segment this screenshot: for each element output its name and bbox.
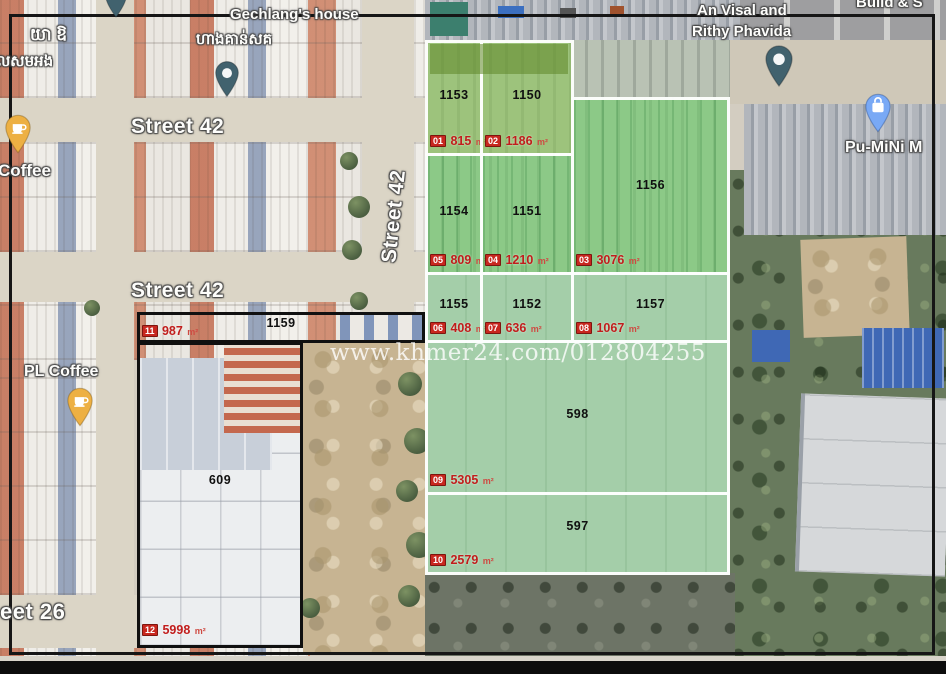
place-label-gechlang: Gechlang's house [230, 6, 359, 23]
watermark: www.khmer24.com/012804255 [330, 340, 706, 366]
place-label-pl-coffee: PL Coffee [24, 363, 98, 381]
place-label-khmer-2: លសមអង [0, 52, 53, 74]
bottom-black-bar [0, 661, 946, 674]
street-label-42-mid: Street 42 [131, 279, 224, 303]
place-label-pu-mini: Pu-MiNi M [845, 139, 922, 157]
shopping-pin-icon [864, 91, 892, 135]
coffee-pin-icon [4, 112, 32, 156]
place-pin-icon [104, 0, 128, 18]
place-label-an-visal-2: Rithy Phavida [692, 23, 791, 40]
image-border-frame [9, 14, 935, 655]
street-label-26: eet 26 [0, 599, 65, 625]
street-label-42-top: Street 42 [131, 115, 224, 139]
place-pin-icon [214, 60, 240, 98]
place-pin-icon [764, 44, 794, 88]
coffee-pin-icon [66, 386, 94, 428]
place-label-an-visal-1: An Visal and [697, 2, 787, 19]
place-label-build: Build & S [856, 0, 923, 11]
place-label-coffee: Coffee [0, 161, 51, 181]
place-label-khmer-1: យា ឱ [30, 24, 67, 49]
satellite-map-image: 1153 01 815 m² 1150 02 1186 m² 1156 03 3… [0, 0, 946, 674]
place-label-gechlang-khmer: ហាងគាន់សគ [196, 30, 272, 52]
